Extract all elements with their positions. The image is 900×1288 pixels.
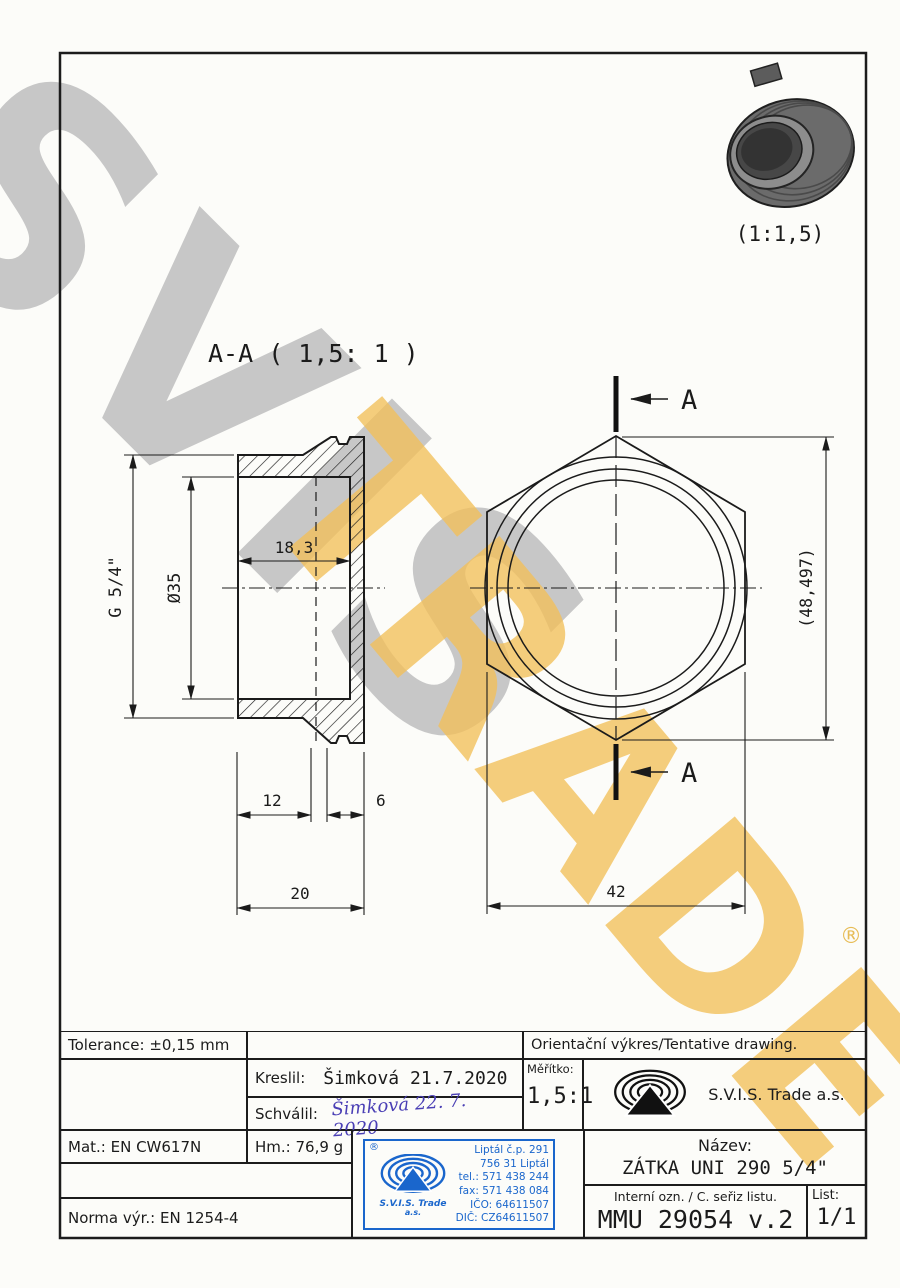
norma-text: Norma výr.: EN 1254-4 bbox=[68, 1209, 239, 1227]
schvalil-cell: Schválil: Šimková 22. 7. 2020 bbox=[247, 1097, 523, 1130]
kreslil-value: Šimková 21.7.2020 bbox=[323, 1068, 507, 1089]
weight-cell: Hm.: 76,9 g bbox=[247, 1130, 352, 1163]
section-view-title: A-A ( 1,5: 1 ) bbox=[208, 339, 419, 368]
company-cell: S.V.I.S. Trade a.s. bbox=[583, 1059, 866, 1130]
meritko-cell: Měřítko: 1,5:1 bbox=[523, 1059, 583, 1130]
stamp-logo-icon bbox=[377, 1154, 449, 1196]
interni-label: Interní ozn. / C. seřiz listu. bbox=[614, 1189, 777, 1204]
schvalil-label: Schválil: bbox=[255, 1105, 318, 1123]
dim-20-label: 20 bbox=[290, 884, 309, 903]
stamp-address-line: IČO: 64611507 bbox=[456, 1199, 549, 1213]
stamp-address: Liptál č.p. 291 756 31 Liptál tel.: 571 … bbox=[456, 1144, 549, 1226]
stamp-company-line2: a.s. bbox=[371, 1209, 455, 1217]
title-block: Tolerance: ±0,15 mm Orientační výkres/Te… bbox=[60, 1031, 866, 1238]
nazev-value: ZÁTKA UNI 290 5/4" bbox=[622, 1157, 828, 1179]
dim-depth-label: 18,3 bbox=[275, 538, 314, 557]
cutting-plane: A A bbox=[616, 376, 697, 800]
dim-12-label: 12 bbox=[262, 791, 281, 810]
section-label-a-top: A bbox=[681, 385, 697, 416]
dim-6-label: 6 bbox=[376, 791, 386, 810]
orientation-note-text: Orientační výkres/Tentative drawing. bbox=[531, 1037, 797, 1053]
company-name: S.V.I.S. Trade a.s. bbox=[708, 1085, 845, 1104]
list-value: 1/1 bbox=[817, 1205, 857, 1230]
meritko-label: Měřítko: bbox=[527, 1062, 574, 1076]
material-text: Mat.: EN CW617N bbox=[68, 1138, 201, 1156]
front-view: A A (48,497) 42 bbox=[470, 376, 834, 914]
kreslil-label: Kreslil: bbox=[255, 1069, 305, 1087]
list-cell: List: 1/1 bbox=[807, 1185, 866, 1238]
stamp-address-line: tel.: 571 438 244 bbox=[456, 1171, 549, 1185]
section-view: A-A ( 1,5: 1 ) G 5/4" Ø35 18,3 bbox=[106, 339, 419, 915]
stamp-address-line: 756 31 Liptál bbox=[456, 1158, 549, 1172]
nazev-label: Název: bbox=[698, 1136, 752, 1155]
tolerance-cell: Tolerance: ±0,15 mm bbox=[60, 1031, 247, 1059]
stamp-logo: S.V.I.S. Trade a.s. bbox=[371, 1154, 455, 1217]
dim-inner-dia-label: Ø35 bbox=[165, 573, 185, 604]
empty-top-cell bbox=[247, 1031, 523, 1059]
nazev-cell: Název: ZÁTKA UNI 290 5/4" bbox=[584, 1130, 866, 1185]
dim-across-flats-label: 42 bbox=[606, 882, 625, 901]
interni-cell: Interní ozn. / C. seřiz listu. MMU 29054… bbox=[584, 1185, 807, 1238]
list-label: List: bbox=[812, 1188, 839, 1203]
photo-cast-tab bbox=[751, 63, 782, 86]
stamp-address-line: DIČ: CZ64611507 bbox=[456, 1212, 549, 1226]
empty-row-cell bbox=[60, 1163, 352, 1198]
dim-thread-label: G 5/4" bbox=[106, 556, 126, 617]
orientation-note-cell: Orientační výkres/Tentative drawing. bbox=[523, 1031, 866, 1059]
tolerance-text: Tolerance: ±0,15 mm bbox=[68, 1036, 229, 1054]
company-stamp: ® S.V.I.S. Trade a.s. Liptál č.p. 291 75… bbox=[363, 1139, 555, 1230]
material-cell: Mat.: EN CW617N bbox=[60, 1130, 247, 1163]
photo-scale-label: (1:1,5) bbox=[710, 222, 850, 246]
stamp-address-line: Liptál č.p. 291 bbox=[456, 1144, 549, 1158]
norma-cell: Norma výr.: EN 1254-4 bbox=[60, 1198, 352, 1238]
product-photo bbox=[704, 49, 866, 222]
stamp-registered-icon: ® bbox=[369, 1142, 379, 1153]
stamp-cell: ® S.V.I.S. Trade a.s. Liptál č.p. 291 75… bbox=[352, 1130, 584, 1238]
company-logo bbox=[604, 1067, 696, 1123]
empty-left-cell bbox=[60, 1059, 247, 1130]
interni-value: MMU 29054 v.2 bbox=[598, 1205, 794, 1234]
dim-across-corners-label: (48,497) bbox=[797, 548, 816, 627]
weight-text: Hm.: 76,9 g bbox=[255, 1138, 343, 1156]
section-label-a-bottom: A bbox=[681, 758, 697, 789]
section-material bbox=[238, 437, 364, 743]
stamp-address-line: fax: 571 438 084 bbox=[456, 1185, 549, 1199]
